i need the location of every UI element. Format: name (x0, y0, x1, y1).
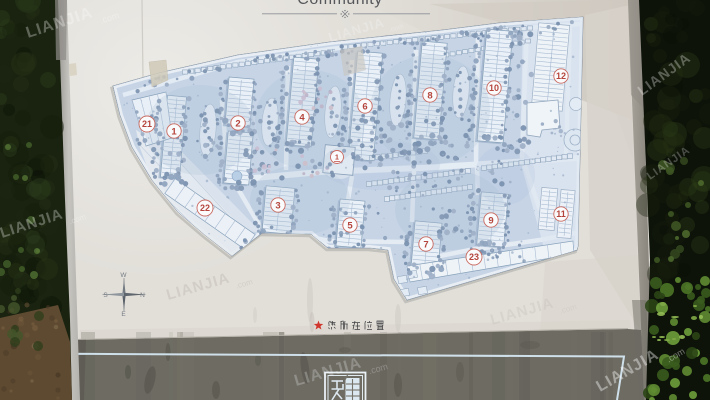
svg-text:Community: Community (297, 0, 382, 8)
svg-text:10: 10 (489, 83, 499, 93)
svg-text:E: E (121, 311, 126, 318)
svg-text:11: 11 (556, 209, 566, 219)
svg-text:2: 2 (235, 118, 240, 129)
svg-text:23: 23 (469, 252, 479, 262)
svg-text:6: 6 (362, 101, 367, 112)
svg-text:5: 5 (347, 220, 353, 231)
svg-text:7: 7 (423, 239, 428, 250)
svg-text:1: 1 (171, 126, 177, 137)
svg-text:21: 21 (142, 119, 152, 129)
svg-text:22: 22 (200, 203, 210, 213)
svg-text:4: 4 (299, 112, 305, 123)
svg-text:9: 9 (488, 215, 493, 226)
svg-text:3: 3 (275, 200, 280, 211)
svg-text:W: W (120, 272, 127, 279)
svg-text:N: N (140, 292, 145, 299)
svg-text:12: 12 (556, 71, 566, 81)
svg-text:8: 8 (427, 90, 432, 101)
svg-text:S: S (103, 292, 108, 299)
svg-text:1: 1 (335, 155, 339, 162)
